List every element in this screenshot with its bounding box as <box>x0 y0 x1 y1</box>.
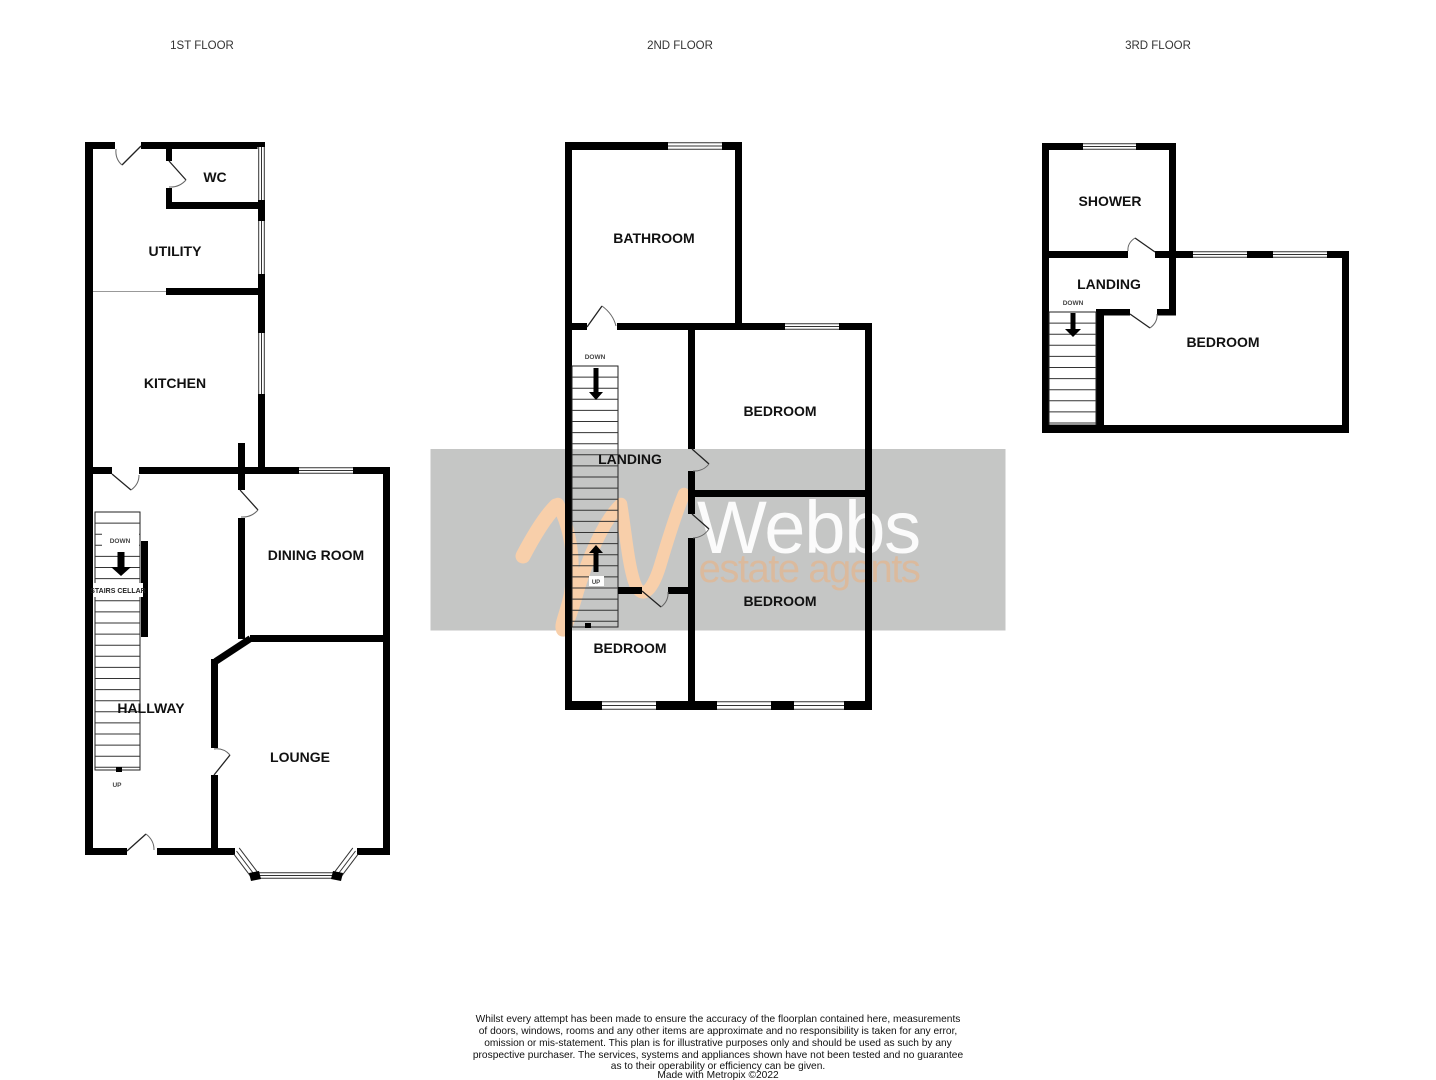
svg-text:STAIRS CELLAR: STAIRS CELLAR <box>90 588 145 595</box>
svg-text:WC: WC <box>203 169 226 185</box>
svg-text:Whilst every attempt has been: Whilst every attempt has been made to en… <box>473 1014 964 1080</box>
svg-text:BATHROOM: BATHROOM <box>613 230 694 246</box>
svg-text:1ST FLOOR: 1ST FLOOR <box>170 40 234 52</box>
svg-text:LANDING: LANDING <box>598 451 662 467</box>
svg-text:LOUNGE: LOUNGE <box>270 749 330 765</box>
svg-text:BEDROOM: BEDROOM <box>593 640 666 656</box>
svg-text:DOWN: DOWN <box>110 538 131 545</box>
svg-text:BEDROOM: BEDROOM <box>743 403 816 419</box>
svg-text:LANDING: LANDING <box>1077 276 1141 292</box>
svg-text:UTILITY: UTILITY <box>149 243 203 259</box>
svg-text:SHOWER: SHOWER <box>1079 193 1142 209</box>
svg-text:BEDROOM: BEDROOM <box>1186 334 1259 350</box>
svg-text:Webbs: Webbs <box>697 486 920 569</box>
svg-text:2ND FLOOR: 2ND FLOOR <box>647 40 713 52</box>
svg-text:HALLWAY: HALLWAY <box>117 700 185 716</box>
svg-text:KITCHEN: KITCHEN <box>144 375 206 391</box>
svg-text:DINING ROOM: DINING ROOM <box>268 547 364 563</box>
svg-text:DOWN: DOWN <box>1063 300 1084 307</box>
svg-text:UP: UP <box>112 782 122 789</box>
svg-text:DOWN: DOWN <box>585 354 606 361</box>
svg-text:3RD FLOOR: 3RD FLOOR <box>1125 40 1191 52</box>
svg-text:UP: UP <box>592 580 600 586</box>
svg-text:BEDROOM: BEDROOM <box>743 593 816 609</box>
